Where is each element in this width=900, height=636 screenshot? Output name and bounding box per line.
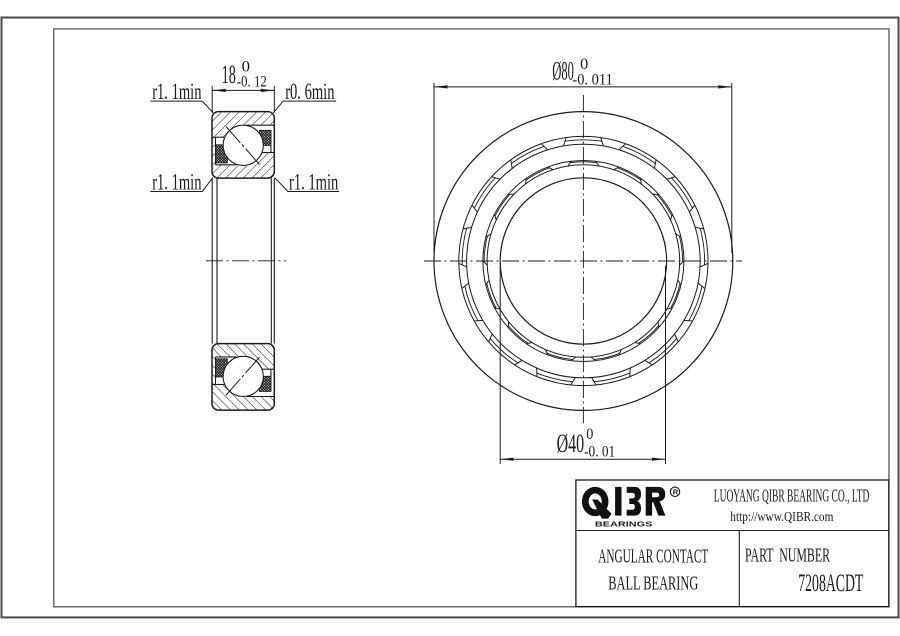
svg-text:7208ACDT: 7208ACDT [798,569,863,597]
svg-text:0: 0 [586,426,593,443]
svg-text:-0. 011: -0. 011 [572,71,612,88]
svg-text:BEARINGS: BEARINGS [595,520,653,529]
svg-text:http://www.QIBR.com: http://www.QIBR.com [730,510,833,525]
svg-text:18: 18 [222,59,236,89]
svg-text:r1. 1min: r1. 1min [152,170,202,195]
svg-text:-0. 12: -0. 12 [237,74,267,91]
svg-text:0: 0 [580,56,588,73]
svg-text:BALL BEARING: BALL BEARING [608,572,698,594]
svg-text:PART NUMBER: PART NUMBER [745,545,830,567]
svg-text:R: R [673,488,679,497]
svg-text:r1. 1min: r1. 1min [152,79,202,104]
svg-text:ANGULAR CONTACT: ANGULAR CONTACT [598,546,708,568]
svg-text:-0. 01: -0. 01 [584,444,615,461]
svg-text:LUOYANG QIBR BEARING CO., LTD: LUOYANG QIBR BEARING CO., LTD [714,486,870,506]
svg-text:Ø40: Ø40 [557,429,585,458]
svg-text:r1. 1min: r1. 1min [289,170,339,195]
svg-text:Ø80: Ø80 [552,56,574,85]
svg-text:r0. 6min: r0. 6min [285,79,335,104]
